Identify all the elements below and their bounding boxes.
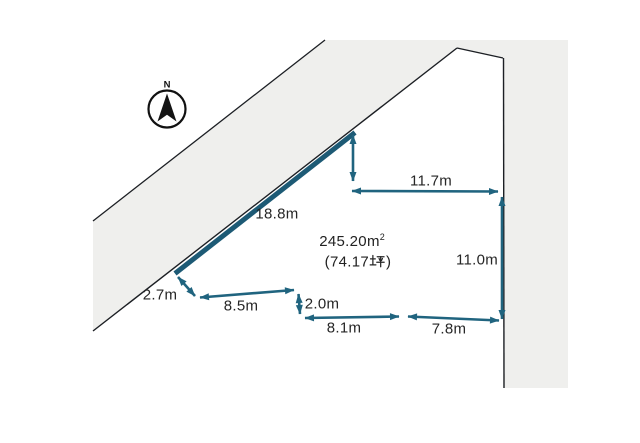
dimension-label-2.7m: 2.7m xyxy=(143,287,178,304)
dimension-label-11.7m: 11.7m xyxy=(410,173,452,190)
area-m2-unit: m xyxy=(367,233,380,250)
dimension-label-11.0m: 11.0m xyxy=(456,252,498,269)
dimension-arrow-8.5m xyxy=(200,290,294,298)
dimension-arrow-11.7m xyxy=(352,191,498,192)
dimension-arrow-2.7m xyxy=(178,277,195,296)
east-boundary-line xyxy=(504,58,505,388)
compass-north-label: N xyxy=(164,80,171,91)
dimension-label-8.1m: 8.1m xyxy=(327,320,362,337)
area-tsubo: (74.17 ) xyxy=(325,254,392,271)
dimension-arrow-2.0m xyxy=(299,294,301,314)
dimension-label-2.0m: 2.0m xyxy=(305,296,340,313)
area-tsubo-suffix: ) xyxy=(386,254,391,271)
area-m2-exponent: 2 xyxy=(380,232,385,242)
area-m2-value: 245.20 xyxy=(319,233,367,250)
dimension-label-7.8m: 7.8m xyxy=(432,321,467,338)
area-tsubo-prefix: (74.17 xyxy=(325,254,369,271)
dimension-label-8.5m: 8.5m xyxy=(224,298,259,315)
plot-diagram-canvas xyxy=(0,0,640,443)
dimension-label-18.8m: 18.8m xyxy=(255,206,298,223)
area-square-meters: 245.20m2 xyxy=(319,232,385,250)
tsubo-character-glyph xyxy=(370,254,385,269)
land-plot-diagram: N 18.8m 11.7m 11.0m 2.7m 8.5m 2.0m 8.1m … xyxy=(0,0,640,443)
dimension-arrow-8.1m xyxy=(305,317,399,319)
